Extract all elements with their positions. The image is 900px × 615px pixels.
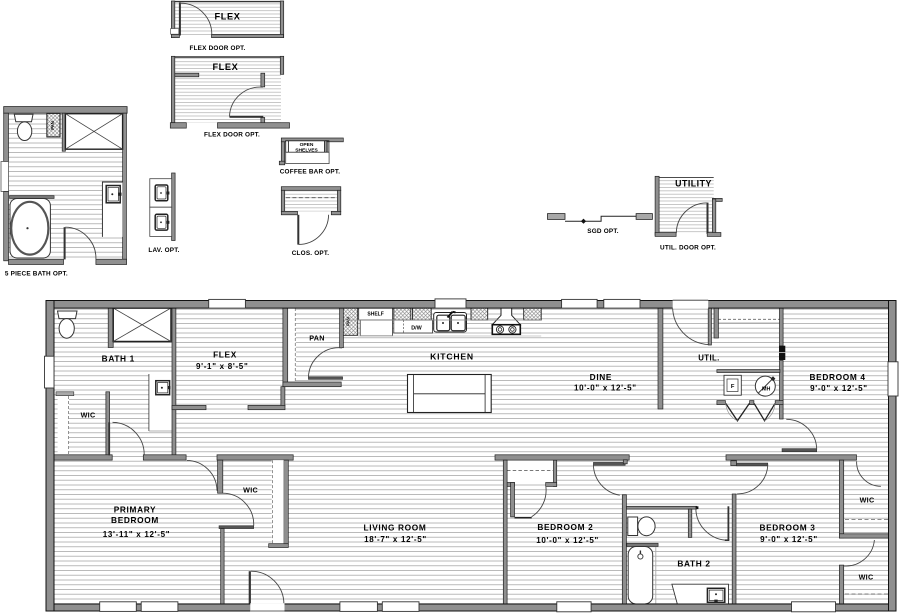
svg-text:UTILITY: UTILITY — [675, 179, 712, 189]
svg-text:KITCHEN: KITCHEN — [430, 352, 474, 362]
svg-text:WIC: WIC — [243, 486, 258, 495]
svg-text:9'-1" x 8'-5": 9'-1" x 8'-5" — [196, 362, 249, 371]
svg-text:MH: MH — [762, 387, 770, 393]
svg-text:WIC: WIC — [860, 496, 875, 505]
svg-text:DINE: DINE — [590, 372, 612, 382]
svg-text:LIVING ROOM: LIVING ROOM — [364, 523, 427, 533]
svg-text:UTIL.: UTIL. — [698, 354, 720, 363]
svg-text:10'-0" x 12'-5": 10'-0" x 12'-5" — [536, 536, 599, 545]
svg-text:BEDROOM 3: BEDROOM 3 — [759, 523, 815, 533]
svg-text:FLEX: FLEX — [213, 350, 237, 360]
svg-text:COFFEE BAR OPT.: COFFEE BAR OPT. — [280, 168, 341, 175]
svg-text:9'-0" x 12'-5": 9'-0" x 12'-5" — [810, 384, 868, 393]
svg-text:PAN: PAN — [50, 121, 55, 130]
svg-text:WIC: WIC — [81, 411, 96, 420]
svg-text:PRIMARY: PRIMARY — [114, 504, 157, 514]
svg-text:SGD OPT.: SGD OPT. — [587, 228, 618, 235]
svg-text:F: F — [731, 384, 735, 390]
svg-text:BEDROOM 4: BEDROOM 4 — [810, 372, 866, 382]
svg-text:FLEX DOOR OPT.: FLEX DOOR OPT. — [204, 131, 260, 138]
svg-text:13'-11" x 12'-5": 13'-11" x 12'-5" — [103, 530, 171, 539]
svg-text:10'-0" x 12'-5": 10'-0" x 12'-5" — [574, 383, 637, 392]
svg-text:WIC: WIC — [859, 573, 874, 582]
svg-text:D/W: D/W — [411, 325, 422, 331]
svg-text:BEDROOM: BEDROOM — [111, 515, 159, 525]
svg-text:FLEX DOOR OPT.: FLEX DOOR OPT. — [189, 45, 245, 52]
svg-text:UTIL. DOOR OPT.: UTIL. DOOR OPT. — [660, 244, 716, 251]
svg-text:BEDROOM 2: BEDROOM 2 — [537, 522, 593, 532]
svg-text:OPEN: OPEN — [300, 142, 314, 148]
svg-text:SHELF: SHELF — [367, 312, 383, 318]
svg-text:PAN: PAN — [346, 317, 351, 326]
svg-text:BATH 1: BATH 1 — [102, 353, 135, 363]
svg-text:CLOS. OPT.: CLOS. OPT. — [292, 250, 330, 257]
svg-text:9'-0" x 12'-5": 9'-0" x 12'-5" — [760, 535, 818, 544]
svg-text:FLEX: FLEX — [212, 62, 238, 72]
svg-text:BATH 2: BATH 2 — [677, 559, 710, 569]
svg-text:5 PIECE BATH OPT.: 5 PIECE BATH OPT. — [5, 271, 68, 278]
svg-text:18'-7" x 12'-5": 18'-7" x 12'-5" — [364, 535, 427, 544]
svg-text:FLEX: FLEX — [215, 12, 241, 22]
svg-text:PAN: PAN — [309, 333, 325, 342]
svg-text:LAV. OPT.: LAV. OPT. — [148, 247, 179, 254]
